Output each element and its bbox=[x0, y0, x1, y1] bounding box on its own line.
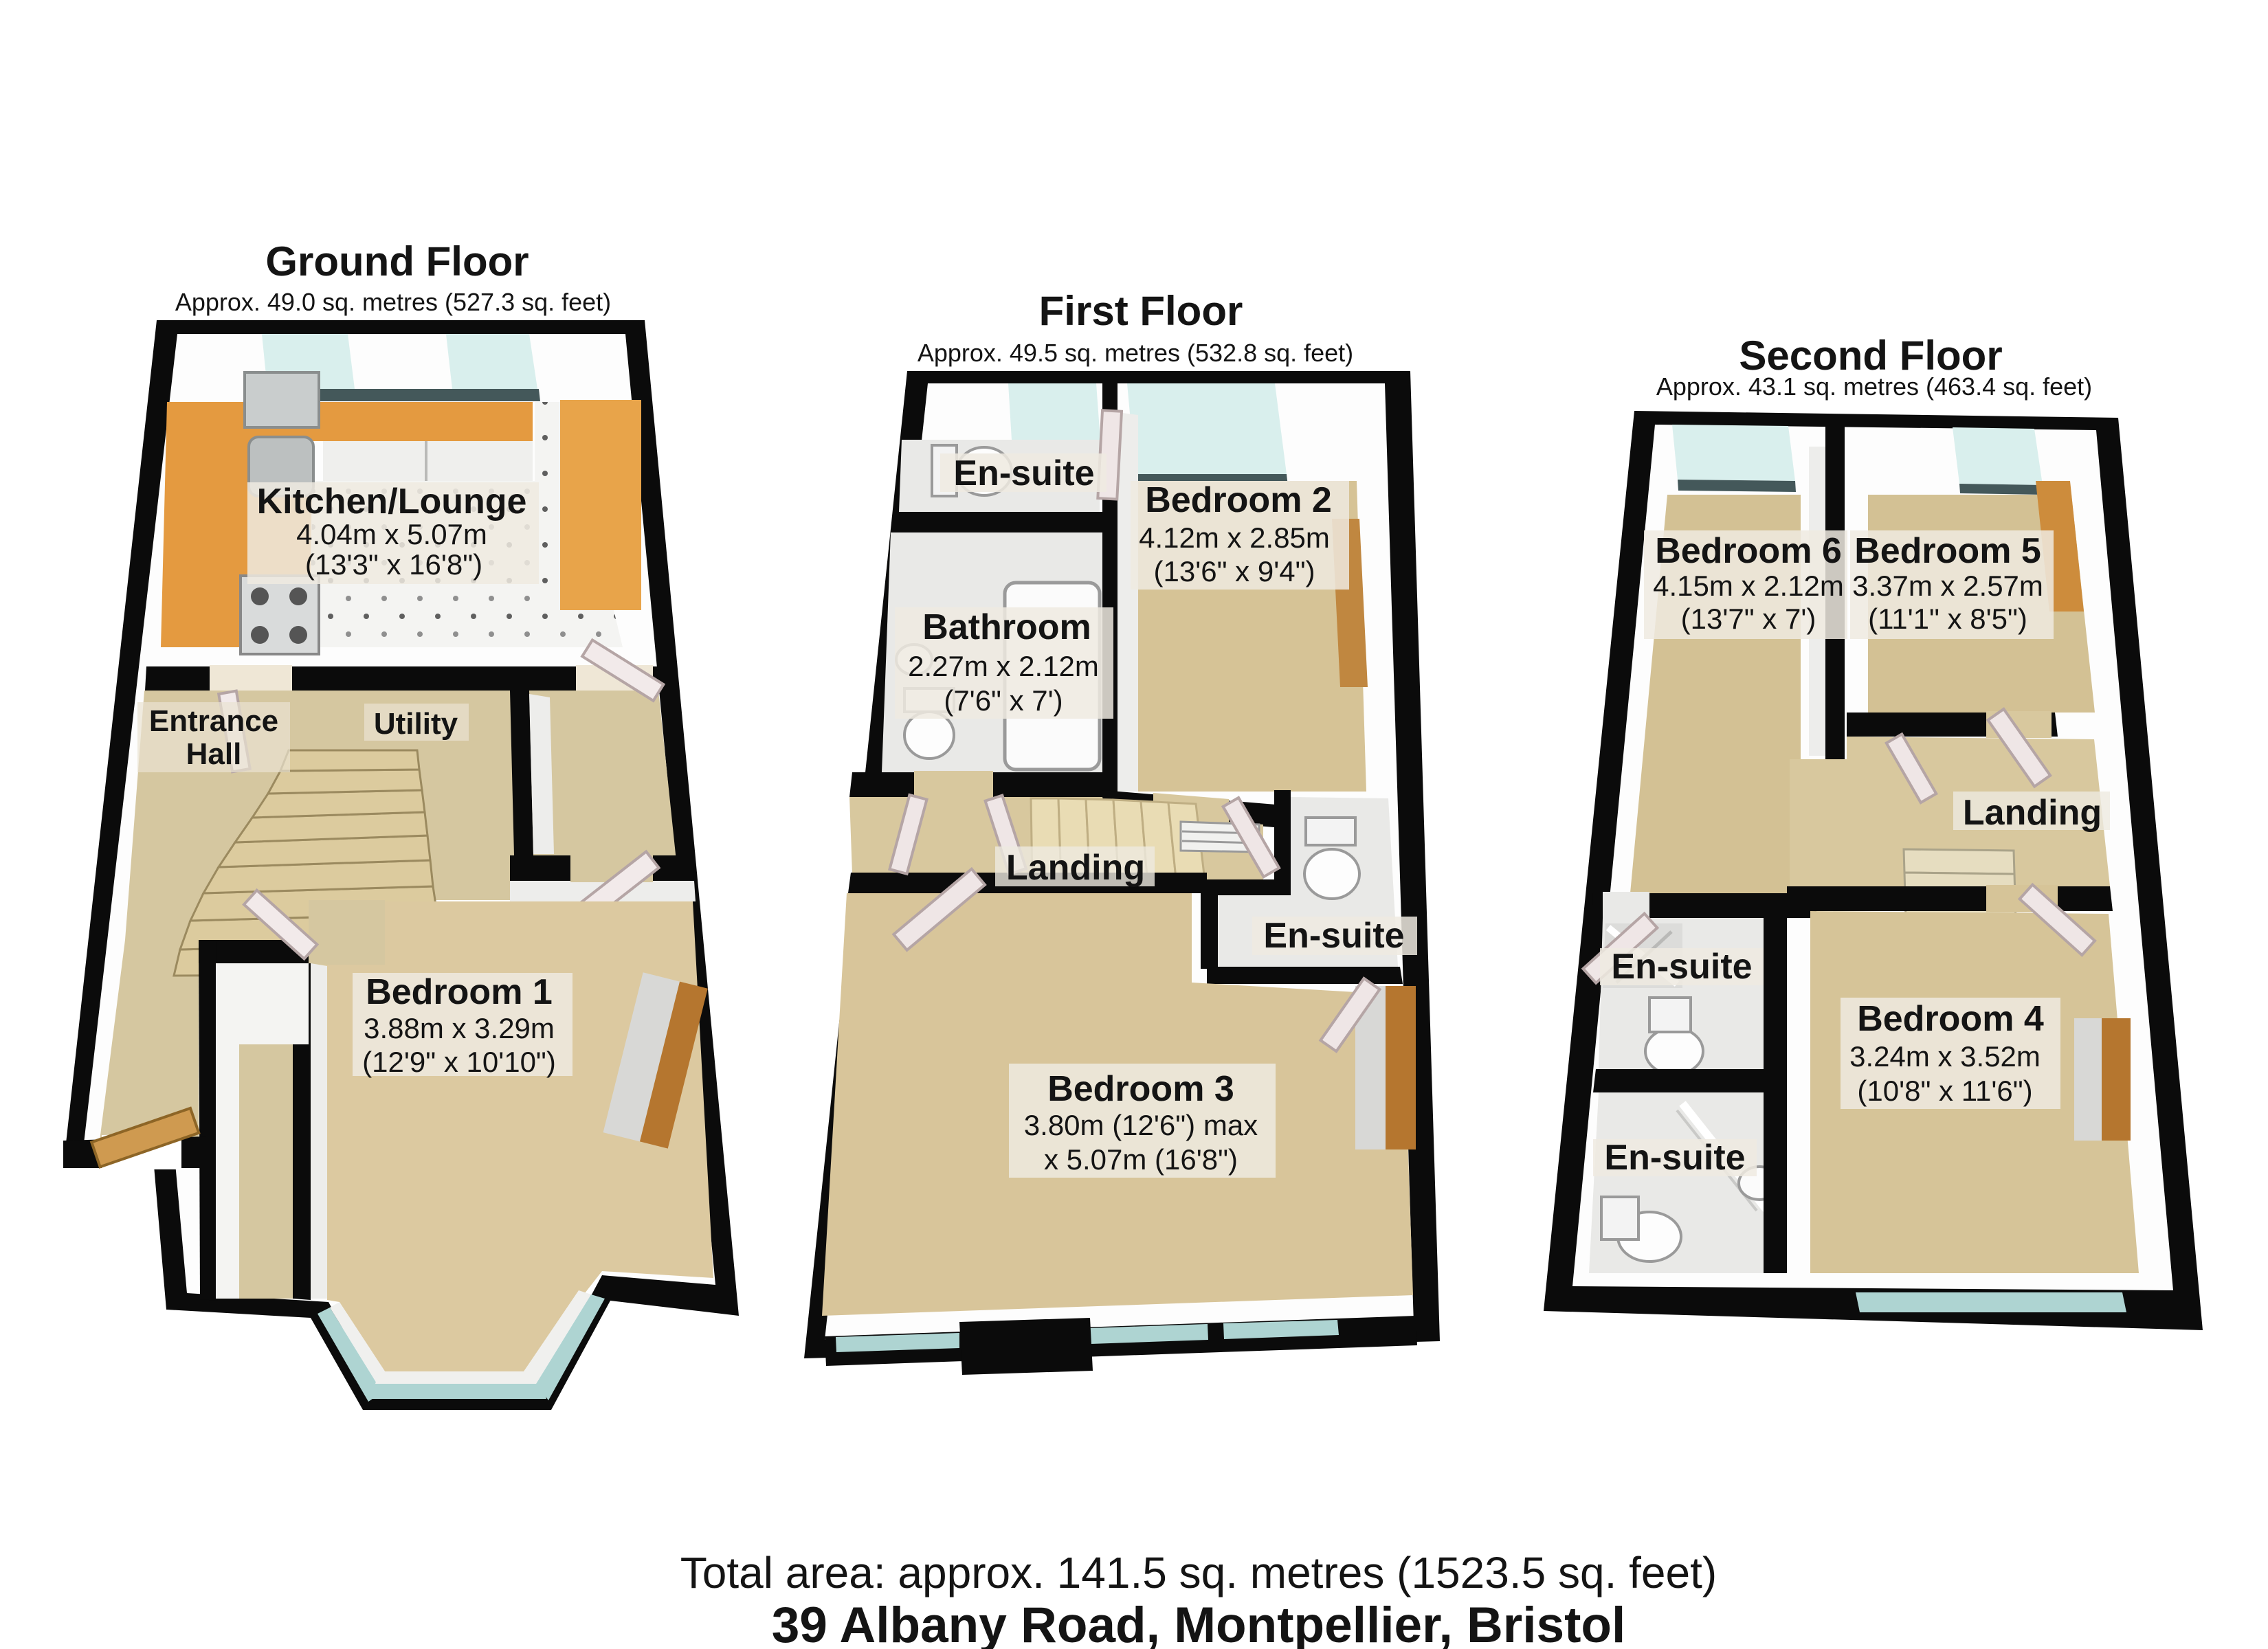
svg-text:(13'7" x 7'): (13'7" x 7') bbox=[1681, 603, 1816, 635]
svg-text:3.37m x 2.57m: 3.37m x 2.57m bbox=[1852, 570, 2043, 602]
svg-text:Approx. 43.1 sq. metres (463.4: Approx. 43.1 sq. metres (463.4 sq. feet) bbox=[1656, 372, 2092, 401]
svg-text:Total area: approx. 141.5 sq.: Total area: approx. 141.5 sq. metres (15… bbox=[680, 1548, 1717, 1597]
svg-text:Bedroom 5: Bedroom 5 bbox=[1854, 531, 2041, 571]
svg-text:En-suite: En-suite bbox=[1604, 1138, 1745, 1178]
svg-text:Landing: Landing bbox=[1963, 793, 2102, 833]
svg-text:Second Floor: Second Floor bbox=[1739, 333, 2002, 379]
svg-text:2.27m x 2.12m: 2.27m x 2.12m bbox=[908, 650, 1099, 682]
svg-text:x 5.07m (16'8"): x 5.07m (16'8") bbox=[1044, 1143, 1238, 1176]
svg-text:(7'6" x 7'): (7'6" x 7') bbox=[944, 684, 1063, 717]
svg-text:(10'8" x 11'6"): (10'8" x 11'6") bbox=[1857, 1075, 2032, 1107]
svg-text:4.12m x 2.85m: 4.12m x 2.85m bbox=[1139, 521, 1330, 554]
svg-text:3.80m (12'6") max: 3.80m (12'6") max bbox=[1024, 1109, 1258, 1141]
svg-text:Landing: Landing bbox=[1006, 848, 1145, 888]
svg-text:Hall: Hall bbox=[186, 737, 242, 771]
svg-text:3.24m x 3.52m: 3.24m x 3.52m bbox=[1849, 1040, 2041, 1073]
svg-text:3.88m x 3.29m: 3.88m x 3.29m bbox=[364, 1012, 555, 1044]
svg-text:Bedroom 6: Bedroom 6 bbox=[1655, 531, 1842, 571]
svg-text:4.04m x 5.07m: 4.04m x 5.07m bbox=[296, 518, 487, 550]
svg-text:Bedroom 1: Bedroom 1 bbox=[366, 972, 553, 1012]
svg-text:Approx. 49.5 sq. metres (532.8: Approx. 49.5 sq. metres (532.8 sq. feet) bbox=[918, 339, 1353, 367]
svg-text:(12'9" x 10'10"): (12'9" x 10'10") bbox=[362, 1046, 556, 1078]
svg-text:39 Albany Road, Montpellier, B: 39 Albany Road, Montpellier, Bristol bbox=[772, 1597, 1626, 1649]
svg-text:Kitchen/Lounge: Kitchen/Lounge bbox=[257, 482, 527, 521]
svg-text:Ground Floor: Ground Floor bbox=[265, 238, 529, 284]
svg-text:(11'1" x 8'5"): (11'1" x 8'5") bbox=[1868, 603, 2027, 635]
svg-text:(13'3" x 16'8"): (13'3" x 16'8") bbox=[305, 548, 482, 581]
svg-text:First Floor: First Floor bbox=[1039, 288, 1243, 334]
svg-text:Bedroom 2: Bedroom 2 bbox=[1145, 480, 1332, 520]
svg-text:Bedroom 3: Bedroom 3 bbox=[1047, 1069, 1234, 1109]
svg-text:(13'6" x 9'4"): (13'6" x 9'4") bbox=[1154, 555, 1315, 587]
svg-text:Utility: Utility bbox=[374, 707, 458, 741]
svg-text:En-suite: En-suite bbox=[1611, 947, 1752, 987]
svg-text:Bathroom: Bathroom bbox=[922, 607, 1091, 647]
svg-text:Approx. 49.0 sq. metres (527.3: Approx. 49.0 sq. metres (527.3 sq. feet) bbox=[175, 288, 611, 316]
svg-text:En-suite: En-suite bbox=[1263, 916, 1404, 956]
svg-text:Bedroom 4: Bedroom 4 bbox=[1857, 999, 2044, 1039]
svg-text:Entrance: Entrance bbox=[149, 704, 278, 738]
svg-text:4.15m x 2.12m: 4.15m x 2.12m bbox=[1653, 570, 1844, 602]
svg-text:En-suite: En-suite bbox=[953, 453, 1094, 493]
